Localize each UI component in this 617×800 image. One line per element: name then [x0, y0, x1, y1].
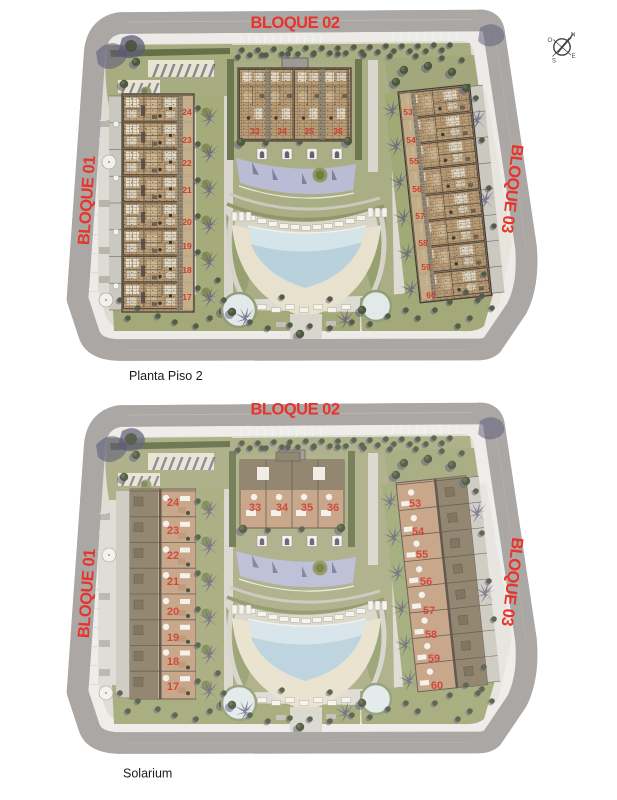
svg-text:BLOQUE 02: BLOQUE 02 [250, 401, 339, 419]
svg-text:E: E [572, 54, 576, 60]
svg-text:Planta Piso 2: Planta Piso 2 [129, 369, 203, 383]
svg-text:N: N [571, 33, 575, 39]
svg-text:O: O [548, 38, 553, 44]
svg-text:BLOQUE 02: BLOQUE 02 [250, 14, 339, 32]
svg-text:Solarium: Solarium [123, 767, 172, 781]
svg-text:S: S [552, 59, 556, 65]
